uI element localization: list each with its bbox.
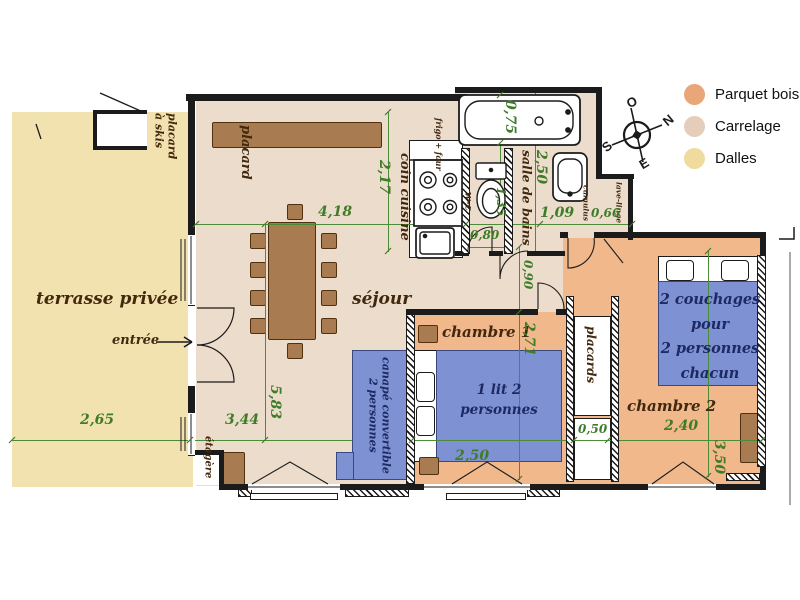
wc-label: w-c bbox=[462, 192, 474, 211]
bedroom2-label: chambre 2 bbox=[627, 398, 716, 415]
dim-kitchen-length: 2,17 bbox=[376, 160, 392, 194]
shelf-label: étagère bbox=[202, 436, 214, 478]
kitchen-label: coin cuisine bbox=[396, 153, 411, 241]
legend-label: Parquet bois bbox=[715, 86, 799, 103]
dim-terrace-width: 2,65 bbox=[80, 412, 114, 428]
dim-bedroom2-length: 3,50 bbox=[711, 440, 727, 474]
dim-bedroom1-length: 2,71 bbox=[521, 322, 537, 356]
legend-label: Carrelage bbox=[715, 118, 781, 135]
compass-north: N bbox=[660, 111, 677, 129]
entry-arrow bbox=[156, 337, 192, 347]
entry-label: entrée bbox=[112, 334, 159, 349]
closet-label: placard bbox=[237, 125, 252, 180]
sofa-label: canapé convertible 2 personnes bbox=[366, 352, 391, 478]
parquet-swatch bbox=[684, 84, 705, 105]
compass-east: E bbox=[637, 155, 652, 172]
bathroom-label: salle de bains bbox=[519, 150, 533, 246]
bed2-label: 2 couchages pour 2 personnes chacun bbox=[658, 288, 762, 387]
bathtub-icon bbox=[459, 95, 580, 145]
hall-closets-label: placards bbox=[583, 326, 597, 383]
carrelage-swatch bbox=[684, 116, 705, 137]
dim-living-length: 5,83 bbox=[267, 385, 283, 419]
legend-item-dalles: Dalles bbox=[684, 148, 757, 169]
dim-hall-top: 1,09 bbox=[540, 205, 574, 221]
kitchen-sink-icon bbox=[416, 228, 454, 258]
ski-closet-label: placard à skis bbox=[152, 113, 177, 159]
compass-west: O bbox=[624, 93, 639, 111]
dim-bedroom1-width: 2,50 bbox=[455, 448, 489, 464]
compass-south: S bbox=[599, 138, 616, 155]
floor-plan: O N S E Parquet bois Carrelage Dalles te… bbox=[0, 0, 800, 600]
terrace-corner-tick bbox=[36, 124, 41, 139]
water-heater-label: cumulus bbox=[581, 185, 590, 221]
dim-living-left-width: 3,44 bbox=[225, 412, 259, 428]
niche-door-leaf bbox=[604, 239, 623, 263]
ski-closet-door-line bbox=[100, 93, 143, 112]
dim-wc-width: 0,80 bbox=[470, 228, 499, 242]
window-lines bbox=[181, 236, 716, 487]
entry-door-swing bbox=[197, 308, 234, 382]
dim-hall-width: 0,90 bbox=[521, 260, 535, 289]
terrace-label: terrasse privée bbox=[36, 290, 178, 310]
bed1-label: 1 lit 2 personnes bbox=[436, 380, 562, 421]
compass-icon: O N S E bbox=[599, 93, 677, 172]
bedroom1-door-swing bbox=[538, 283, 564, 309]
legend-label: Dalles bbox=[715, 150, 757, 167]
fridge-oven-label: frigo + four bbox=[434, 118, 443, 171]
dim-niche-width: 0,66 bbox=[591, 206, 620, 220]
dim-living-width: 4,18 bbox=[318, 204, 352, 220]
french-door-leaves bbox=[252, 462, 714, 484]
dim-bath-inner: 1,35 bbox=[494, 187, 508, 216]
dim-bath-length: 2,50 bbox=[533, 150, 549, 184]
legend-item-carrelage: Carrelage bbox=[684, 116, 781, 137]
dim-closet-depth: 0,50 bbox=[578, 422, 607, 436]
bedroom1-label: chambre 1 bbox=[442, 324, 531, 341]
dalles-swatch bbox=[684, 148, 705, 169]
dim-bathtub-width: 0,75 bbox=[502, 100, 518, 134]
living-label: séjour bbox=[352, 290, 411, 310]
corridor-door-swing bbox=[568, 238, 594, 268]
boundary-corner-mark bbox=[779, 227, 794, 239]
dim-bedroom2-width: 2,40 bbox=[664, 418, 698, 434]
legend-item-parquet: Parquet bois bbox=[684, 84, 799, 105]
